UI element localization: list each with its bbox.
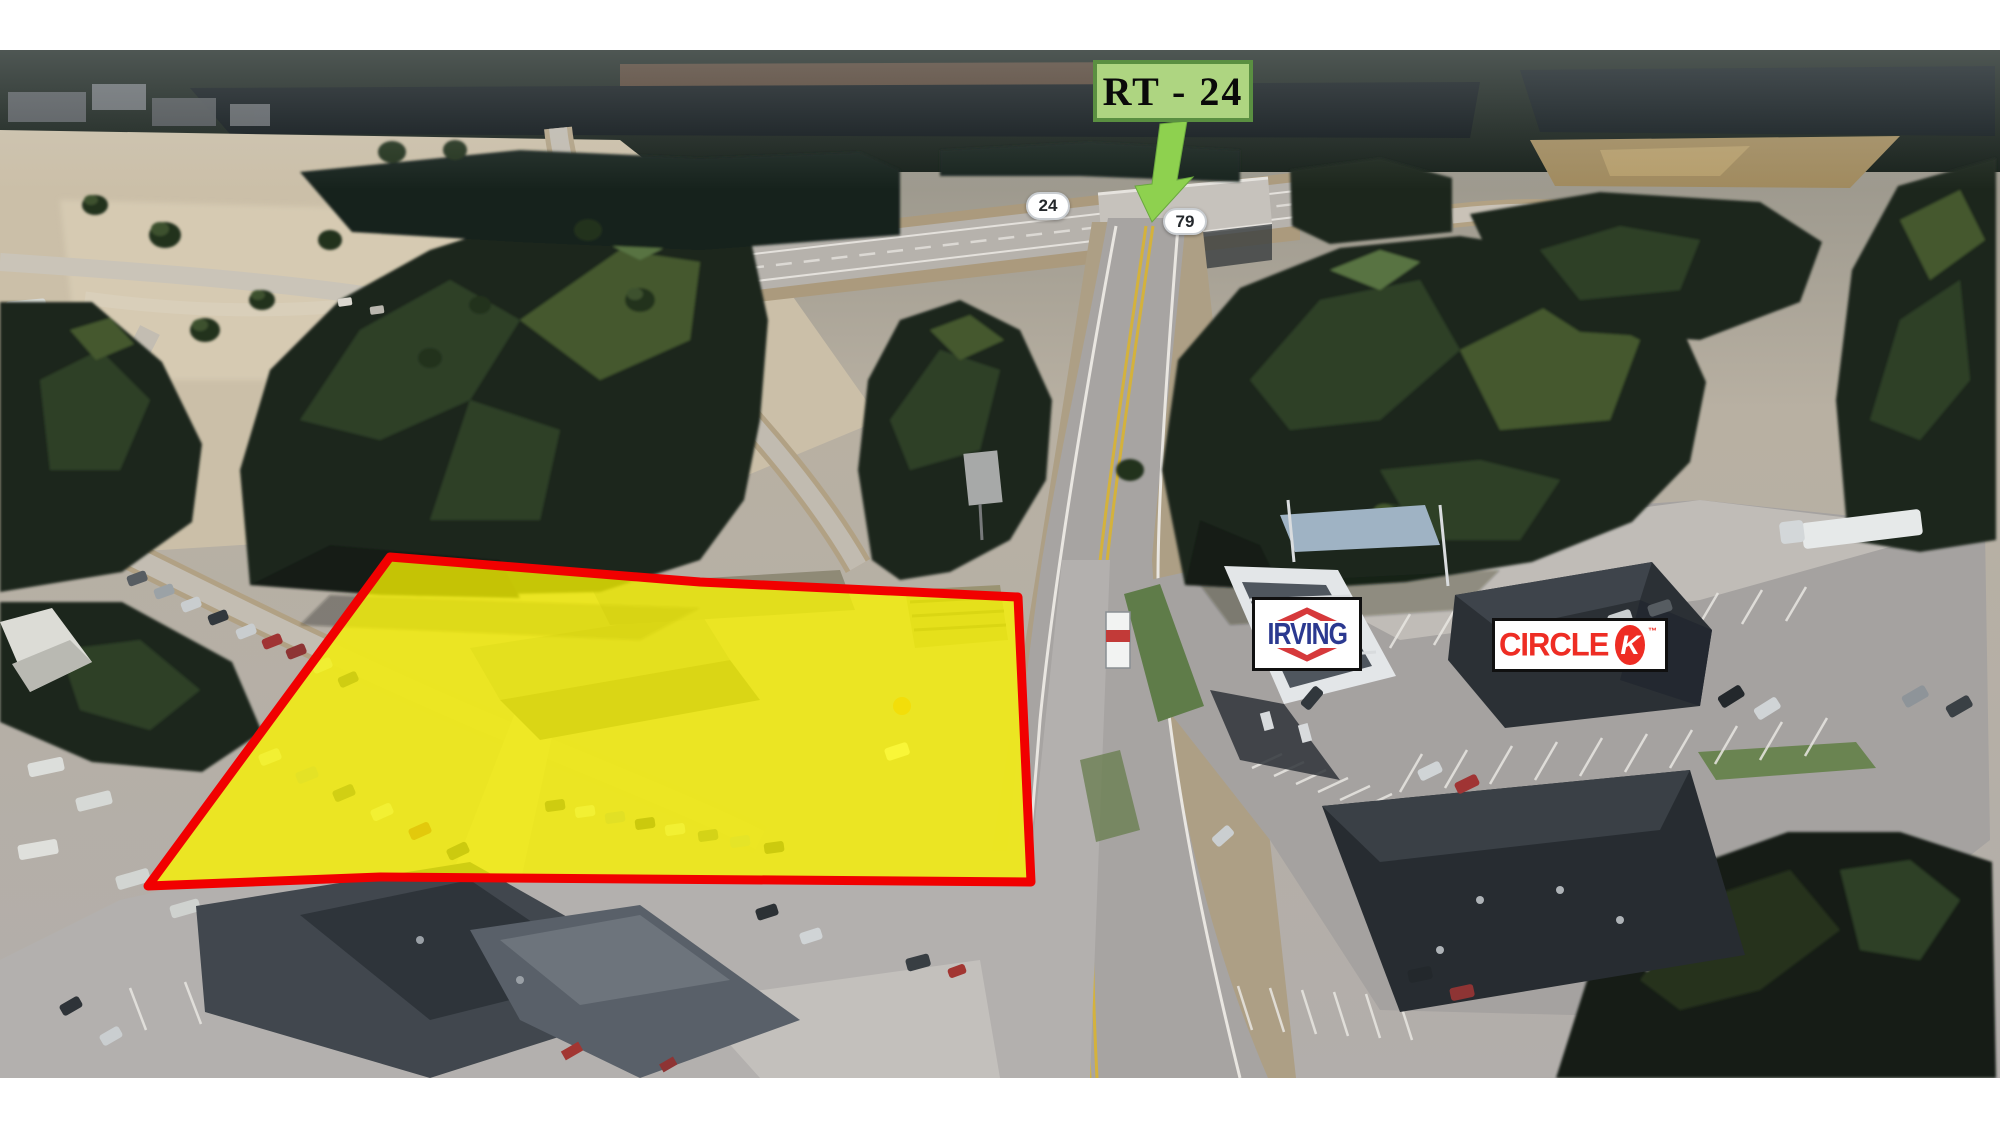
circle-k-word-text: CIRCLE	[1499, 626, 1608, 664]
rt24-label-text: RT - 24	[1103, 68, 1244, 115]
irving-sign: IRVING	[1252, 597, 1362, 671]
aerial-site-exhibit: RT - 24 24 79 IRVING CIRCLE K ™	[0, 0, 2000, 1125]
circle-k-badge: K	[1615, 625, 1645, 665]
circle-k-trademark: ™	[1648, 626, 1657, 636]
route-shield-79: 79	[1163, 208, 1207, 235]
aerial-scene	[0, 50, 2000, 1078]
irving-logo-text: IRVING	[1267, 619, 1347, 649]
circle-k-sign: CIRCLE K ™	[1492, 618, 1668, 672]
atmospheric-haze	[0, 50, 2000, 450]
route-shield-24: 24	[1026, 192, 1070, 220]
route-shield-79-text: 79	[1176, 212, 1195, 232]
aerial-photo	[0, 50, 2000, 1078]
rt24-label: RT - 24	[1093, 60, 1253, 122]
route-shield-24-text: 24	[1039, 196, 1058, 216]
circle-k-letter: K	[1620, 632, 1640, 659]
